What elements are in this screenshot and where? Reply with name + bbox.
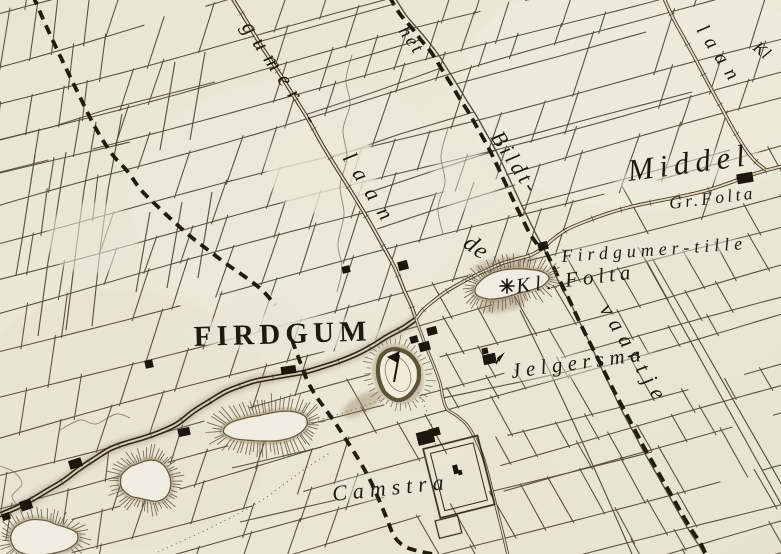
svg-text:FIRDGUM: FIRDGUM <box>193 315 372 353</box>
